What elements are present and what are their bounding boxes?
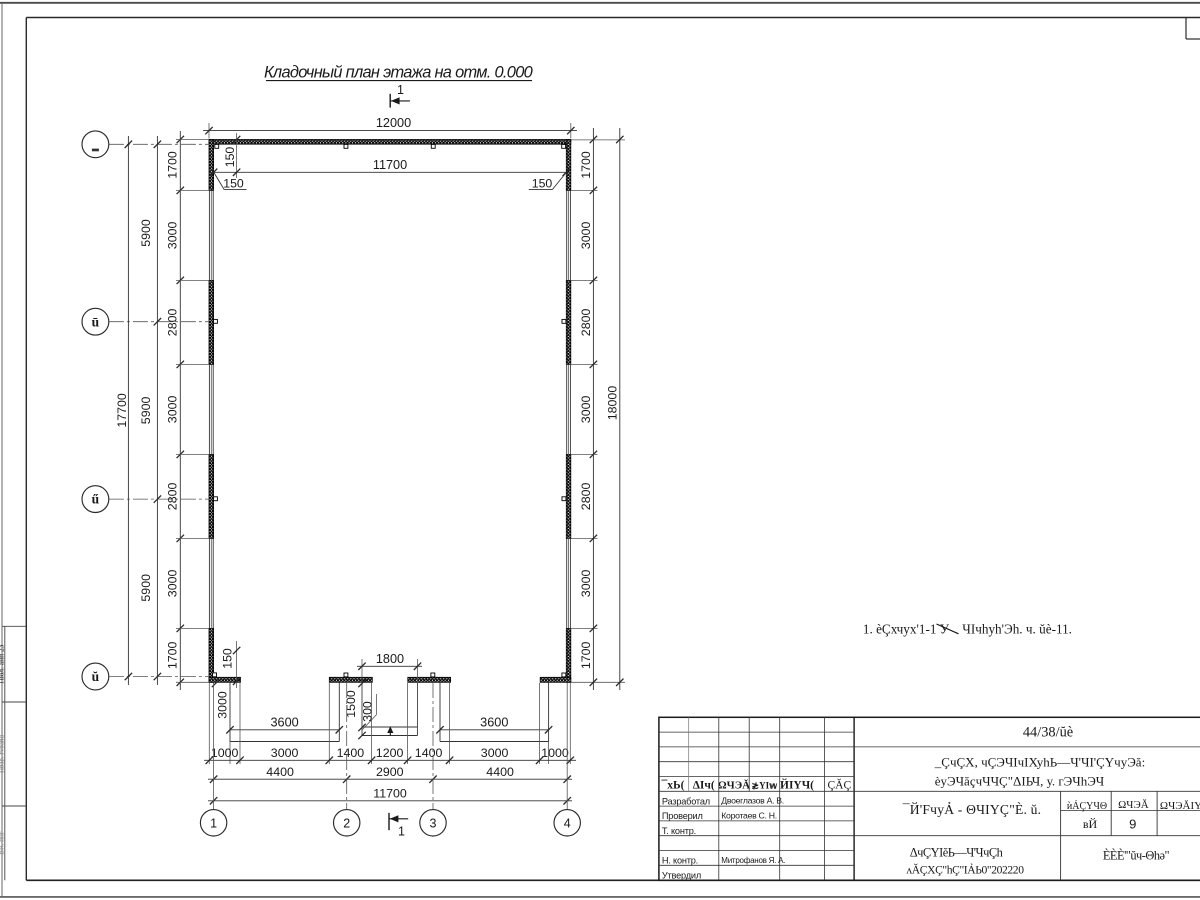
svg-text:Кладочный план этажа на отм. 0: Кладочный план этажа на отм. 0.000 — [264, 64, 533, 82]
svg-text:1400: 1400 — [337, 746, 365, 760]
svg-text:11700: 11700 — [373, 787, 407, 801]
svg-text:Двоеглазов А. В.: Двоеглазов А. В. — [721, 796, 784, 806]
svg-text:150: 150 — [532, 176, 553, 190]
svg-text:1000: 1000 — [541, 746, 569, 760]
svg-text:5900: 5900 — [139, 219, 153, 247]
svg-text:¯хЬ(: ¯хЬ( — [661, 778, 685, 791]
svg-text:ÈÈÈ'"ŭч-Θhə": ÈÈÈ'"ŭч-Θhə" — [1103, 848, 1170, 862]
svg-text:ΩЧЭĂIY: ΩЧЭĂIY — [1160, 800, 1200, 812]
svg-text:Проверил: Проверил — [662, 811, 703, 821]
svg-text:2: 2 — [343, 816, 350, 830]
svg-text:Пваρ. гνband: Пваρ. гνband — [0, 734, 6, 773]
svg-text:ΩЧЭĂ: ΩЧЭĂ — [718, 779, 750, 791]
svg-text:150: 150 — [223, 176, 244, 190]
svg-text:Утвердил: Утвердил — [662, 870, 701, 880]
svg-text:4: 4 — [564, 816, 571, 830]
svg-text:4400: 4400 — [486, 765, 514, 779]
svg-text:Т. контр.: Т. контр. — [662, 826, 696, 836]
svg-text:ū: ū — [92, 314, 100, 329]
svg-text:≵YI𝕨: ≵YI𝕨 — [752, 780, 779, 790]
svg-text:Разработал: Разработал — [662, 796, 710, 806]
svg-text:3000: 3000 — [166, 570, 180, 598]
svg-text:ÇĂÇ: ÇĂÇ — [827, 777, 851, 791]
svg-text:3000: 3000 — [166, 396, 180, 424]
svg-text:9: 9 — [1129, 816, 1136, 831]
svg-text:3000: 3000 — [271, 746, 299, 760]
svg-text:1400: 1400 — [415, 746, 443, 760]
svg-text:3000: 3000 — [579, 396, 593, 424]
svg-text:2800: 2800 — [166, 309, 180, 337]
svg-text:17700: 17700 — [115, 393, 129, 428]
svg-text:ΔчÇYIĕЬ—Ч'ЧчÇh: ΔчÇYIĕЬ—Ч'ЧчÇh — [910, 845, 1004, 859]
svg-text:1200: 1200 — [376, 746, 404, 760]
svg-text:ʌĂÇХÇ"hÇ"IẢЬ0"202220: ʌĂÇХÇ"hÇ"IẢЬ0"202220 — [906, 863, 1024, 877]
svg-text:300: 300 — [361, 701, 375, 722]
svg-text:ΩЧЭĂ: ΩЧЭĂ — [1118, 799, 1149, 811]
svg-text:èуЭЧăçчЧЧÇ"ΔIЬЧ, у. гЭЧhЭЧ: èуЭЧăçчЧЧÇ"ΔIЬЧ, у. гЭЧhЭЧ — [935, 773, 1105, 788]
svg-text:2800: 2800 — [579, 309, 593, 337]
svg-text:ѝẢÇYЧΘ: ѝẢÇYЧΘ — [1067, 800, 1107, 812]
svg-text:ʙЙ: ʙЙ — [1083, 817, 1098, 831]
svg-text:3000: 3000 — [166, 222, 180, 250]
svg-text:Н. контр.: Н. контр. — [662, 856, 698, 866]
svg-text:¯Й'FчуẢ - ΘЧIYÇ"È. ŭ.: ¯Й'FчуẢ - ΘЧIYÇ"È. ŭ. — [902, 801, 1042, 817]
svg-text:ΔIч(: ΔIч( — [693, 779, 715, 791]
svg-text:18000: 18000 — [605, 386, 619, 421]
svg-text:3600: 3600 — [480, 715, 508, 729]
svg-text:5900: 5900 — [139, 574, 153, 602]
svg-text:1: 1 — [398, 825, 405, 839]
svg-text:3: 3 — [430, 816, 437, 830]
svg-text:Коротаев С. Н.: Коротаев С. Н. — [721, 810, 777, 820]
svg-text:1. èÇхчух'1-1 У ЧIчhуh'Эh.: 1. èÇхчух'1-1 У ЧIчhуh'Эh. ч. ŭè-11. — [863, 622, 1072, 637]
svg-text:1700: 1700 — [166, 151, 180, 179]
svg-text:1800: 1800 — [376, 652, 404, 666]
svg-text:4400: 4400 — [266, 765, 294, 779]
svg-text:ŭ: ŭ — [92, 669, 100, 684]
svg-text:Пюл. анп 2З: Пюл. анп 2З — [0, 644, 6, 683]
svg-text:3600: 3600 — [270, 715, 298, 729]
svg-text:1700: 1700 — [166, 641, 180, 669]
svg-text:3000: 3000 — [579, 222, 593, 250]
svg-text:1: 1 — [210, 816, 217, 830]
svg-text:Митрофанов Я. А.: Митрофанов Я. А. — [721, 856, 785, 865]
svg-text:1700: 1700 — [579, 641, 593, 669]
svg-text:3000: 3000 — [216, 691, 230, 719]
svg-text:1500: 1500 — [344, 690, 358, 718]
svg-text:1: 1 — [397, 83, 404, 97]
svg-text:44/38/ŭè: 44/38/ŭè — [1023, 724, 1073, 740]
svg-text:2800: 2800 — [166, 483, 180, 511]
svg-text:11700: 11700 — [373, 158, 407, 172]
svg-text:150: 150 — [223, 147, 237, 168]
svg-text:ű: ű — [92, 492, 100, 507]
svg-text:2900: 2900 — [376, 765, 404, 779]
svg-text:3000: 3000 — [579, 570, 593, 598]
svg-text:ЙIҮЧ(: ЙIҮЧ( — [780, 777, 814, 791]
svg-text:3000: 3000 — [481, 746, 509, 760]
svg-text:1700: 1700 — [579, 151, 593, 179]
svg-text:1000: 1000 — [211, 746, 239, 760]
svg-text:12000: 12000 — [376, 116, 411, 130]
svg-text:Вค. пнг: Вค. пнг — [0, 831, 6, 854]
svg-text:150: 150 — [221, 648, 235, 669]
svg-text:5900: 5900 — [139, 397, 153, 425]
svg-text:2800: 2800 — [579, 483, 593, 511]
svg-text:_ÇчÇХ, чÇЭЧIчIХуhЬ—Ч'ЧI'ÇYчуЭă: _ÇчÇХ, чÇЭЧIчIХуhЬ—Ч'ЧI'ÇYчуЭă: — [934, 755, 1145, 770]
